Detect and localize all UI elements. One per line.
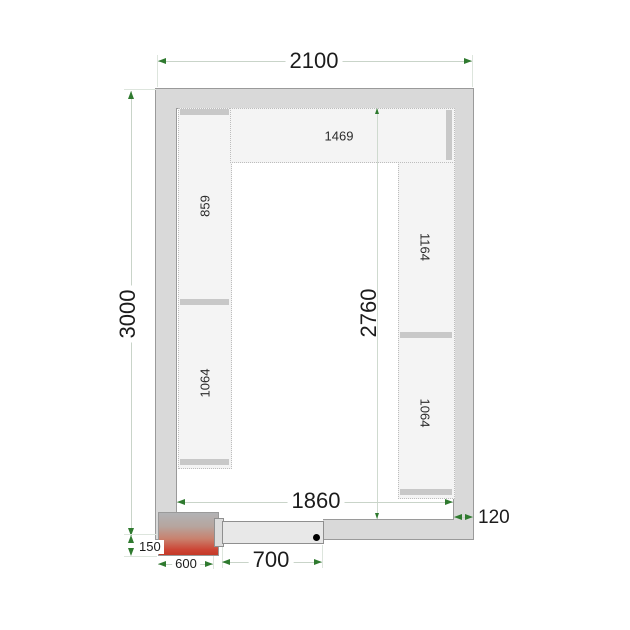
dim-label-wall-thickness: 120 <box>478 508 510 529</box>
arrow-right-icon <box>445 499 453 505</box>
shelf-cap-left-bottom <box>180 459 229 465</box>
dim-label-inner-width: 1860 <box>288 489 345 513</box>
shelf-left-column <box>178 108 232 469</box>
tick-up-icon <box>375 108 379 114</box>
arrow-left-icon <box>158 58 166 64</box>
arrow-right-icon <box>464 58 472 64</box>
dim-label-door-width: 700 <box>249 548 294 572</box>
extension-line <box>472 55 473 87</box>
arrow-up-icon <box>128 91 134 99</box>
arrow-right-icon <box>465 514 473 520</box>
shelf-cap-right-bottom <box>400 489 452 495</box>
dim-label-inner-height: 2760 <box>357 285 381 342</box>
arrow-up-icon <box>128 535 134 543</box>
extension-line <box>124 556 157 557</box>
arrow-left-icon <box>222 559 230 565</box>
door-handle-dot <box>313 534 320 541</box>
arrow-right-icon <box>205 561 213 567</box>
shelf-label-right-lower: 1064 <box>419 399 432 428</box>
extension-line <box>124 89 156 90</box>
shelf-cap-left-top <box>180 109 229 115</box>
dim-label-unit-width: 600 <box>172 557 200 571</box>
tick-down-icon <box>375 513 379 519</box>
extension-line <box>213 556 214 569</box>
shelf-cap-top-right-end <box>446 110 452 160</box>
arrow-left-icon <box>177 499 185 505</box>
arrow-left-icon <box>158 561 166 567</box>
door-panel <box>222 521 324 544</box>
dim-label-outer-width: 2100 <box>286 49 343 73</box>
shelf-label-right-upper: 1164 <box>419 233 432 261</box>
shelf-label-left-lower: 1064 <box>199 369 212 398</box>
cooling-unit <box>158 512 219 556</box>
floor-plan: 1469 859 1064 1164 1064 2100 3000 2760 1… <box>0 0 630 630</box>
arrow-left-icon <box>454 514 462 520</box>
shelf-cap-left-mid <box>180 299 229 305</box>
extension-line <box>322 545 323 568</box>
shelf-right-column <box>398 162 455 499</box>
shelf-label-left-upper: 859 <box>199 195 212 217</box>
arrow-down-icon <box>128 548 134 556</box>
dim-label-unit-depth: 150 <box>136 540 164 554</box>
shelf-label-top: 1469 <box>325 130 354 143</box>
shelf-cap-right-mid <box>400 332 452 338</box>
dim-label-outer-height: 3000 <box>116 286 140 343</box>
arrow-right-icon <box>314 559 322 565</box>
